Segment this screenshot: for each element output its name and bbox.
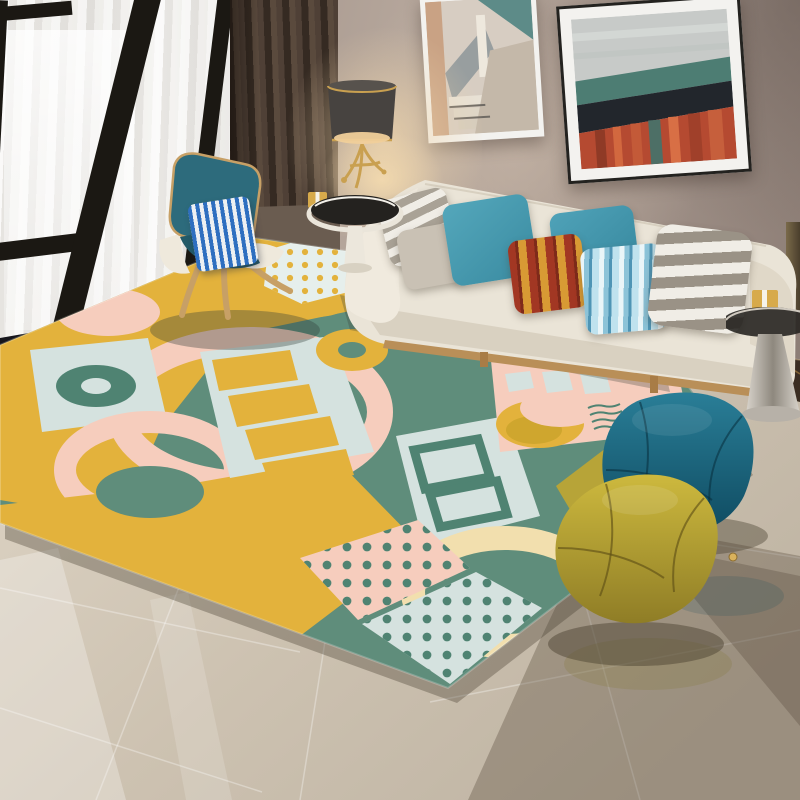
pouf-teal-highlight <box>632 404 712 436</box>
living-room-photo <box>0 0 800 800</box>
olive-pouf-shadow <box>548 622 724 666</box>
poufs <box>0 0 800 800</box>
pouf-olive-highlight <box>602 485 678 515</box>
gold-knob-on-floor <box>729 553 737 561</box>
